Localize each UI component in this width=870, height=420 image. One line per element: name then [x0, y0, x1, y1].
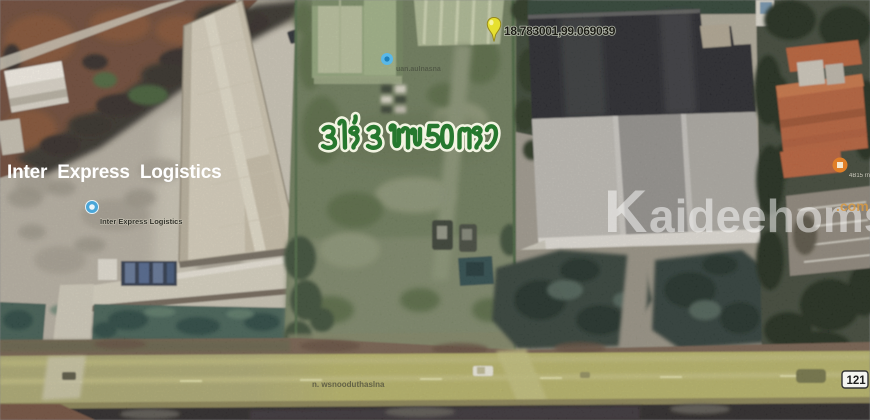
svg-text:n. wsnooduthaslna: n. wsnooduthaslna [312, 380, 385, 389]
svg-text:Inter Express Logistics: Inter Express Logistics [7, 162, 221, 183]
svg-text:.com: .com [836, 198, 869, 214]
svg-text:18.783001,99.069039: 18.783001,99.069039 [504, 24, 616, 38]
svg-text:K: K [604, 178, 647, 245]
svg-text:121: 121 [847, 375, 867, 387]
svg-text:uan.aulnasna: uan.aulnasna [396, 66, 441, 73]
svg-text:4B15 rn: 4B15 rn [849, 173, 870, 179]
svg-text:Inter Express Logistics: Inter Express Logistics [100, 217, 183, 226]
